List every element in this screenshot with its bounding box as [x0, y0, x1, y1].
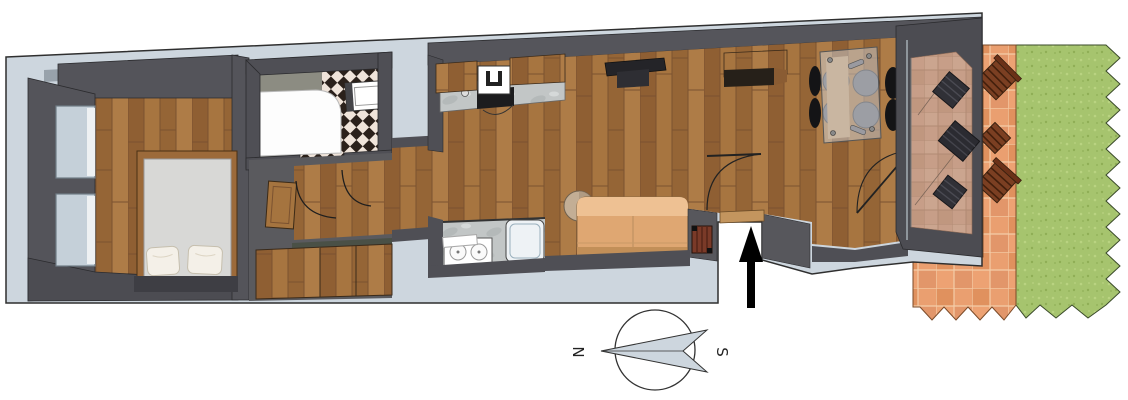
- kitchen-cabinet: [510, 54, 565, 85]
- loggia: [896, 18, 982, 257]
- bathroom: [246, 52, 392, 170]
- dining-chair-back: [809, 98, 821, 128]
- compass: N S: [569, 310, 731, 390]
- pillow: [187, 245, 222, 275]
- headboard: [134, 276, 238, 292]
- bathroom-wall-right: [378, 52, 392, 160]
- north-label: N: [569, 346, 587, 357]
- window: [56, 194, 95, 266]
- floor-plan-image: N S: [0, 0, 1128, 400]
- bed: [134, 151, 238, 292]
- radiator: [692, 226, 712, 253]
- laundry: [428, 216, 545, 278]
- kitchen-cabinet: [436, 61, 477, 93]
- hallway-wood-floor: [294, 160, 392, 240]
- washbasin-unit: [443, 235, 492, 266]
- window: [56, 106, 95, 178]
- bathroom-wall-left: [246, 60, 260, 168]
- pillow: [146, 246, 180, 276]
- laundry-wall-left: [428, 216, 443, 272]
- open-door-leaf: [265, 181, 296, 229]
- shower-cabin: [506, 220, 544, 262]
- dining-chair-back: [809, 66, 821, 96]
- wardrobe-front: [256, 244, 392, 299]
- entrance-threshold: [720, 210, 764, 223]
- grass-area: [1016, 45, 1120, 318]
- tv-stand: [617, 69, 649, 88]
- shower-tub: [260, 90, 341, 156]
- washbasin: [345, 81, 383, 111]
- south-label: S: [713, 347, 731, 357]
- floor-plan-svg: N S: [0, 0, 1128, 400]
- wall-shelf: [724, 50, 787, 87]
- hallway: [249, 153, 392, 301]
- sofa: [577, 197, 688, 259]
- bedroom: [28, 55, 249, 301]
- sink: [478, 66, 510, 94]
- entrance-arrow: [739, 226, 763, 308]
- sofa-back: [577, 197, 688, 216]
